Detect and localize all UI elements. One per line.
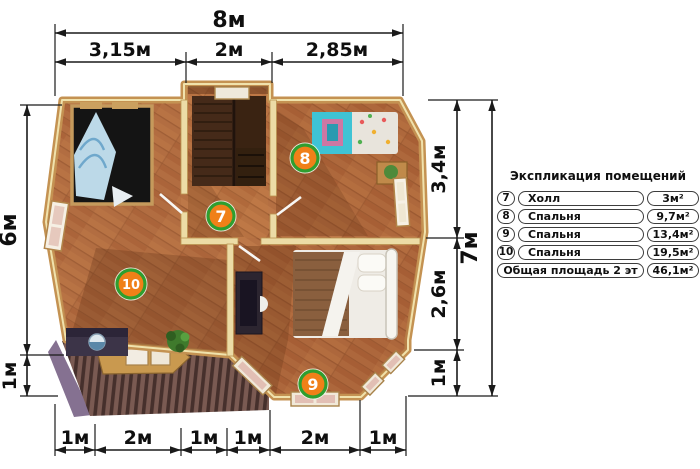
- dim-label: 3,15м: [89, 39, 151, 61]
- dim-label: 3,4м: [428, 144, 450, 193]
- legend-room-area: 9,7м²: [647, 209, 699, 224]
- legend-room-name: Спальня: [518, 245, 644, 260]
- dim-label: 2м: [215, 39, 244, 61]
- legend-total-label: Общая площадь 2 эт: [497, 263, 644, 278]
- legend-title: Экспликация помещений: [497, 169, 699, 183]
- svg-text:8: 8: [299, 149, 310, 168]
- svg-text:9: 9: [307, 375, 318, 394]
- legend-row: 7 Холл 3м²: [497, 191, 699, 206]
- floor-plan-page: 7 8 9 10 8м 3,15м 2м 2,85м: [0, 0, 700, 469]
- dim-label: 1м: [428, 359, 450, 388]
- dormer-skylight: [215, 87, 249, 99]
- legend-total-row: Общая площадь 2 эт 46,1м²: [497, 263, 699, 278]
- legend-room-number: 7: [497, 191, 515, 206]
- legend-room-name: Спальня: [518, 227, 644, 242]
- dim-label: 1м: [0, 362, 21, 391]
- desk-room-10: [66, 328, 128, 356]
- legend-room-area: 3м²: [647, 191, 699, 206]
- staircase: [192, 87, 266, 186]
- dim-label: 2,85м: [306, 39, 368, 61]
- dim-label: 2м: [124, 427, 153, 449]
- room-badge-10: 10: [115, 268, 148, 301]
- dim-label-top-total: 8м: [212, 8, 245, 33]
- headboard: [386, 249, 397, 339]
- skylight: [126, 349, 148, 365]
- legend-room-name: Холл: [518, 191, 644, 206]
- legend-room-name: Спальня: [518, 209, 644, 224]
- dim-label: 1м: [369, 427, 398, 449]
- legend-row: 10 Спальня 19,5м²: [497, 245, 699, 260]
- room-badge-9: 9: [298, 369, 329, 400]
- legend-room-number: 8: [497, 209, 515, 224]
- svg-text:10: 10: [122, 278, 140, 293]
- svg-text:7: 7: [215, 207, 226, 226]
- bed-room-9: [293, 249, 397, 339]
- legend-total-area: 46,1м²: [647, 263, 699, 278]
- dim-label-right-total: 7м: [458, 231, 483, 264]
- room-schedule: Экспликация помещений 7 Холл 3м² 8 Спаль…: [497, 169, 699, 281]
- dim-label: 2,6м: [428, 269, 450, 318]
- dim-label: 6м: [0, 213, 22, 246]
- window-room-8-right: [393, 178, 409, 227]
- legend-room-number: 9: [497, 227, 515, 242]
- dim-label: 1м: [234, 427, 263, 449]
- legend-row: 8 Спальня 9,7м²: [497, 209, 699, 224]
- dim-label: 1м: [190, 427, 219, 449]
- plant: [384, 165, 398, 179]
- bed-room-10: [72, 102, 152, 207]
- dim-label: 2м: [301, 427, 330, 449]
- room-badge-8: 8: [290, 143, 321, 174]
- bed-room-8: [312, 112, 398, 154]
- legend-room-area: 19,5м²: [647, 245, 699, 260]
- legend-room-number: 10: [497, 245, 515, 260]
- legend-row: 9 Спальня 13,4м²: [497, 227, 699, 242]
- legend-room-area: 13,4м²: [647, 227, 699, 242]
- dim-label: 1м: [61, 427, 90, 449]
- room-badge-7: 7: [206, 201, 237, 232]
